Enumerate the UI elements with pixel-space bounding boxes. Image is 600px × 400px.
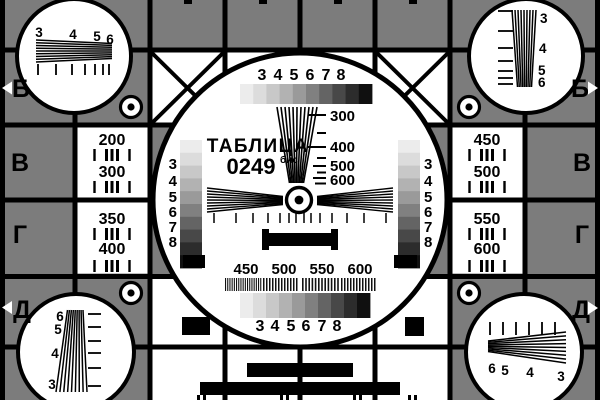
tick-mark bbox=[128, 149, 130, 161]
scale-dash bbox=[313, 177, 326, 179]
tick-mark bbox=[468, 228, 470, 240]
scale-dash bbox=[313, 165, 326, 167]
tick-mark bbox=[111, 260, 114, 272]
tick-mark bbox=[105, 181, 108, 193]
tick-mark bbox=[554, 322, 556, 335]
burst-stripe bbox=[293, 278, 295, 291]
tick-mark bbox=[486, 181, 489, 193]
scale-number: 3 bbox=[258, 67, 267, 84]
grayscale-step bbox=[398, 204, 420, 217]
burst-stripe bbox=[232, 278, 233, 291]
tick-mark bbox=[93, 228, 95, 240]
wedge-line bbox=[317, 200, 393, 201]
grayscale-step bbox=[332, 84, 346, 104]
wedge-number: 6 bbox=[488, 361, 496, 376]
bullseye-dot bbox=[127, 289, 134, 296]
cut-off-glyph bbox=[334, 0, 342, 4]
wedge-line bbox=[36, 48, 112, 49]
cut-off-glyph bbox=[280, 395, 283, 400]
burst-stripe bbox=[272, 278, 274, 291]
tick-mark bbox=[498, 83, 513, 85]
grayscale-step bbox=[331, 293, 344, 318]
bullseye-dot bbox=[465, 103, 472, 110]
frequency-label: 550 bbox=[309, 261, 334, 278]
frequency-label: 500 bbox=[271, 261, 296, 278]
tick-mark bbox=[503, 260, 505, 272]
card-number: 0249 bbox=[227, 154, 276, 179]
cut-off-glyph bbox=[197, 395, 200, 400]
scale-number: 7 bbox=[318, 318, 327, 335]
wedge-number: 4 bbox=[51, 346, 59, 361]
burst-stripe bbox=[318, 278, 320, 291]
grayscale-step bbox=[293, 84, 307, 104]
wedge-number: 4 bbox=[526, 365, 534, 380]
grayscale-step bbox=[344, 293, 357, 318]
left-grayscale-column bbox=[180, 140, 202, 268]
burst-stripe bbox=[302, 278, 304, 291]
tick-mark bbox=[515, 322, 517, 335]
burst-stripe bbox=[236, 278, 237, 291]
grayscale-step bbox=[180, 242, 202, 255]
sync-bar-short bbox=[247, 363, 353, 377]
row-letter: Б bbox=[571, 75, 589, 103]
panel-number: 500 bbox=[474, 164, 501, 181]
wedge-number: 4 bbox=[69, 27, 77, 42]
tick-mark bbox=[491, 260, 494, 272]
grayscale-step bbox=[292, 293, 305, 318]
grayscale-step bbox=[305, 293, 318, 318]
tick-mark bbox=[319, 213, 321, 223]
grayscale-step bbox=[180, 140, 202, 153]
scale-dash bbox=[317, 157, 326, 159]
cut-off-glyph bbox=[353, 395, 356, 400]
tick-mark bbox=[116, 260, 119, 272]
burst-stripe bbox=[247, 278, 248, 291]
burst-stripe bbox=[284, 278, 286, 291]
burst-stripe bbox=[315, 278, 317, 291]
burst-stripe bbox=[245, 278, 246, 291]
scale-number: 8 bbox=[337, 67, 346, 84]
tick-mark bbox=[503, 149, 505, 161]
grayscale-step bbox=[180, 230, 202, 243]
frequency-label: 300 bbox=[330, 108, 355, 125]
burst-stripe bbox=[341, 278, 343, 291]
burst-stripe bbox=[371, 278, 373, 291]
test-card-svg: 3 4 5 6 3 4 5 6 6 5 4 3 6 5 4 3 3 4 5 6 … bbox=[0, 0, 600, 400]
burst-stripe bbox=[290, 278, 292, 291]
tick-mark bbox=[541, 322, 543, 335]
tick-mark bbox=[346, 213, 348, 223]
grayscale-step bbox=[357, 293, 370, 318]
grayscale-step bbox=[398, 217, 420, 230]
scale-number: 8 bbox=[333, 318, 342, 335]
tick-mark bbox=[93, 181, 95, 193]
tick-mark bbox=[88, 385, 101, 387]
column-number: 3 bbox=[169, 156, 177, 173]
grayscale-step bbox=[398, 178, 420, 191]
burst-stripe bbox=[263, 278, 265, 291]
column-number: 3 bbox=[424, 156, 432, 173]
tick-mark bbox=[468, 260, 470, 272]
wedge-number: 3 bbox=[540, 11, 548, 26]
tick-mark bbox=[295, 213, 297, 223]
bullseye-dot bbox=[465, 289, 472, 296]
burst-stripe bbox=[249, 278, 250, 291]
wedge-line bbox=[524, 10, 525, 87]
tick-mark bbox=[88, 340, 101, 342]
tick-mark bbox=[213, 213, 215, 223]
grayscale-step bbox=[266, 84, 280, 104]
burst-stripe bbox=[238, 278, 239, 291]
burst-stripe bbox=[234, 278, 235, 291]
tick-mark bbox=[363, 213, 365, 223]
scale-dash bbox=[315, 183, 326, 185]
grayscale-step bbox=[319, 84, 333, 104]
panel-number: 600 bbox=[474, 241, 501, 258]
burst-stripe bbox=[334, 278, 336, 291]
tick-mark bbox=[128, 228, 130, 240]
burst-stripe bbox=[324, 278, 326, 291]
wedge-number: 6 bbox=[538, 75, 546, 90]
burst-stripe bbox=[368, 278, 370, 291]
tick-mark bbox=[498, 47, 513, 49]
row-letter: Б bbox=[12, 75, 30, 103]
grayscale-step bbox=[398, 242, 420, 255]
tick-mark bbox=[385, 213, 387, 223]
burst-stripe bbox=[281, 278, 283, 291]
burst-stripe bbox=[321, 278, 323, 291]
row-letter: Д bbox=[13, 296, 31, 324]
cut-off-glyph bbox=[414, 395, 417, 400]
grayscale-step bbox=[180, 217, 202, 230]
bottom-grayscale-bar bbox=[240, 293, 370, 318]
burst-stripe bbox=[275, 278, 277, 291]
burst-stripe bbox=[312, 278, 314, 291]
scale-number: 7 bbox=[322, 67, 331, 84]
column-number: 4 bbox=[424, 173, 433, 190]
wedge-number: 5 bbox=[54, 322, 62, 337]
grayscale-step bbox=[180, 191, 202, 204]
tick-mark bbox=[235, 213, 237, 223]
tick-mark bbox=[88, 367, 101, 369]
grayscale-step bbox=[398, 140, 420, 153]
wedge-number: 3 bbox=[48, 377, 56, 392]
burst-stripe bbox=[229, 278, 230, 291]
tick-mark bbox=[71, 64, 73, 75]
burst-stripe bbox=[225, 278, 226, 291]
right-column-numbers: 3 4 5 6 7 8 bbox=[424, 156, 433, 251]
tick-mark bbox=[116, 149, 119, 161]
burst-stripe bbox=[243, 278, 244, 291]
black-block-left bbox=[182, 317, 210, 335]
burst-stripe bbox=[347, 278, 349, 291]
burst-stripe bbox=[362, 278, 364, 291]
scale-dash bbox=[308, 114, 326, 116]
black-block-right bbox=[405, 317, 424, 336]
panel-number: 350 bbox=[99, 211, 126, 228]
tick-mark bbox=[102, 64, 104, 75]
tick-mark bbox=[94, 64, 96, 75]
tick-mark bbox=[491, 228, 494, 240]
burst-stripe bbox=[258, 278, 259, 291]
tick-mark bbox=[105, 260, 108, 272]
grayscale-step bbox=[398, 166, 420, 179]
frequency-label: 400 bbox=[330, 139, 355, 156]
tick-mark bbox=[267, 213, 269, 223]
tick-mark bbox=[486, 228, 489, 240]
wedge-number: 5 bbox=[501, 363, 509, 378]
row-letter: Д bbox=[572, 296, 590, 324]
frequency-wedge-labels: 300 400 500 600 bbox=[330, 108, 355, 189]
tick-mark bbox=[468, 149, 470, 161]
wedge-number: 6 bbox=[106, 32, 114, 47]
tick-mark bbox=[88, 352, 101, 354]
tick-mark bbox=[489, 322, 491, 335]
grayscale-step bbox=[180, 166, 202, 179]
scale-number: 4 bbox=[274, 67, 283, 84]
frequency-label: 600 bbox=[330, 172, 355, 189]
tick-mark bbox=[279, 213, 281, 223]
column-number: 8 bbox=[169, 234, 177, 251]
tick-mark bbox=[105, 228, 108, 240]
grayscale-step bbox=[253, 84, 267, 104]
tick-mark bbox=[498, 77, 513, 79]
burst-stripe bbox=[287, 278, 289, 291]
tick-mark bbox=[468, 181, 470, 193]
tick-mark bbox=[88, 326, 101, 328]
burst-stripe bbox=[337, 278, 339, 291]
wedge-line bbox=[526, 10, 527, 87]
panel-number: 550 bbox=[474, 211, 501, 228]
panel-number: 300 bbox=[99, 164, 126, 181]
grayscale-step bbox=[398, 191, 420, 204]
scale-number: 6 bbox=[302, 318, 311, 335]
scale-dash bbox=[317, 132, 326, 134]
panel-number: 400 bbox=[99, 241, 126, 258]
grayscale-step bbox=[359, 84, 373, 104]
frequency-label: 450 bbox=[233, 261, 258, 278]
tick-mark bbox=[108, 64, 110, 75]
wedge-line bbox=[36, 53, 112, 54]
tick-mark bbox=[528, 322, 530, 335]
left-column-numbers: 3 4 5 6 7 8 bbox=[169, 156, 178, 251]
scale-number: 6 bbox=[306, 67, 315, 84]
burst-stripe bbox=[359, 278, 361, 291]
bullseye-bottom-left bbox=[121, 283, 142, 304]
tick-mark bbox=[288, 213, 290, 223]
tick-mark bbox=[498, 10, 513, 12]
burst-stripe bbox=[269, 278, 271, 291]
tick-mark bbox=[480, 181, 483, 193]
cut-off-glyph bbox=[184, 0, 192, 4]
cut-off-glyph bbox=[286, 395, 289, 400]
frequency-label: 600 bbox=[347, 261, 372, 278]
tick-mark bbox=[503, 181, 505, 193]
tick-mark bbox=[116, 228, 119, 240]
grayscale-step bbox=[398, 153, 420, 166]
bullseye-top-left bbox=[121, 97, 142, 118]
grayscale-step bbox=[180, 204, 202, 217]
card-number-suffix: бис bbox=[280, 154, 298, 166]
scale-dash bbox=[317, 172, 326, 174]
bullseye-dot bbox=[127, 103, 134, 110]
tick-mark bbox=[503, 228, 505, 240]
grayscale-step bbox=[280, 84, 294, 104]
tick-mark bbox=[111, 149, 114, 161]
scale-number: 4 bbox=[271, 318, 280, 335]
tick-mark bbox=[480, 260, 483, 272]
tick-mark bbox=[480, 228, 483, 240]
burst-stripe bbox=[240, 278, 241, 291]
tick-mark bbox=[116, 181, 119, 193]
burst-stripe bbox=[296, 278, 298, 291]
tick-mark bbox=[498, 60, 513, 62]
tick-mark bbox=[111, 181, 114, 193]
burst-stripe bbox=[353, 278, 355, 291]
tick-mark bbox=[111, 228, 114, 240]
grayscale-step bbox=[398, 230, 420, 243]
grayscale-step bbox=[253, 293, 266, 318]
burst-stripe bbox=[328, 278, 330, 291]
tick-mark bbox=[105, 149, 108, 161]
tick-mark bbox=[480, 149, 483, 161]
tick-mark bbox=[498, 30, 513, 32]
burst-stripe bbox=[308, 278, 310, 291]
tick-mark bbox=[84, 64, 86, 75]
bullseye-top-right bbox=[459, 97, 480, 118]
burst-stripe bbox=[254, 278, 255, 291]
burst-stripe bbox=[374, 278, 376, 291]
scale-dash bbox=[308, 146, 326, 148]
column-number: 4 bbox=[169, 173, 178, 190]
burst-stripe bbox=[331, 278, 333, 291]
grayscale-step bbox=[306, 84, 320, 104]
grayscale-step bbox=[180, 178, 202, 191]
grayscale-step bbox=[240, 293, 253, 318]
tick-mark bbox=[252, 213, 254, 223]
wedge-line bbox=[207, 200, 283, 201]
right-grayscale-column bbox=[398, 140, 420, 268]
row-letter: В bbox=[11, 149, 29, 177]
grayscale-step bbox=[180, 153, 202, 166]
tick-mark bbox=[498, 70, 513, 72]
burst-stripe bbox=[260, 278, 261, 291]
wedge-number: 3 bbox=[35, 25, 43, 40]
corner-circle-top-left bbox=[17, 0, 131, 113]
bar-cap bbox=[262, 229, 269, 250]
panel-number: 450 bbox=[474, 132, 501, 149]
wedge-number: 3 bbox=[557, 369, 565, 384]
tick-mark bbox=[93, 149, 95, 161]
grayscale-step bbox=[318, 293, 331, 318]
tick-mark bbox=[128, 260, 130, 272]
cut-off-glyph bbox=[203, 395, 206, 400]
column-number: 8 bbox=[424, 234, 432, 251]
tick-mark bbox=[128, 181, 130, 193]
top-grayscale-bar bbox=[240, 84, 372, 104]
burst-stripe bbox=[251, 278, 252, 291]
tick-mark bbox=[502, 322, 504, 335]
tick-mark bbox=[486, 260, 489, 272]
burst-stripe bbox=[344, 278, 346, 291]
burst-stripe bbox=[227, 278, 228, 291]
tick-mark bbox=[55, 64, 57, 75]
row-letter: В bbox=[573, 149, 591, 177]
wedge-number: 5 bbox=[93, 29, 101, 44]
tick-mark bbox=[486, 149, 489, 161]
bullseye-bottom-right bbox=[459, 283, 480, 304]
grayscale-step bbox=[266, 293, 279, 318]
black-marker-right bbox=[394, 255, 417, 268]
cut-off-glyph bbox=[408, 395, 411, 400]
wedge-number: 4 bbox=[539, 41, 547, 56]
tick-mark bbox=[491, 149, 494, 161]
tv-test-card: 3 4 5 6 3 4 5 6 6 5 4 3 6 5 4 3 3 4 5 6 … bbox=[0, 0, 600, 400]
burst-stripe bbox=[305, 278, 307, 291]
tick-mark bbox=[491, 181, 494, 193]
burst-stripe bbox=[278, 278, 280, 291]
tick-mark bbox=[310, 213, 312, 223]
tick-mark bbox=[303, 213, 305, 223]
burst-stripe bbox=[350, 278, 352, 291]
bullseye-center bbox=[287, 188, 312, 213]
grayscale-step bbox=[240, 84, 254, 104]
burst-stripe bbox=[256, 278, 257, 291]
panel-number: 200 bbox=[99, 132, 126, 149]
bar-body bbox=[267, 233, 333, 246]
burst-stripe bbox=[266, 278, 268, 291]
cut-off-glyph bbox=[359, 395, 362, 400]
sync-bar-long bbox=[200, 382, 400, 395]
bullseye-dot bbox=[295, 196, 304, 205]
cut-off-glyph bbox=[259, 0, 267, 4]
tick-mark bbox=[331, 213, 333, 223]
tick-mark bbox=[37, 64, 39, 75]
row-letter: Г bbox=[13, 221, 27, 249]
row-letter: Г bbox=[575, 221, 589, 249]
tick-mark bbox=[93, 260, 95, 272]
cut-off-glyph bbox=[409, 0, 417, 4]
tick-mark bbox=[88, 313, 101, 315]
scale-number: 5 bbox=[290, 67, 299, 84]
burst-stripe bbox=[356, 278, 358, 291]
burst-stripe bbox=[365, 278, 367, 291]
grayscale-step bbox=[279, 293, 292, 318]
scale-number: 3 bbox=[256, 318, 265, 335]
bar-cap bbox=[331, 229, 338, 250]
grayscale-step bbox=[346, 84, 360, 104]
scale-number: 5 bbox=[287, 318, 296, 335]
black-marker-left bbox=[183, 255, 205, 268]
